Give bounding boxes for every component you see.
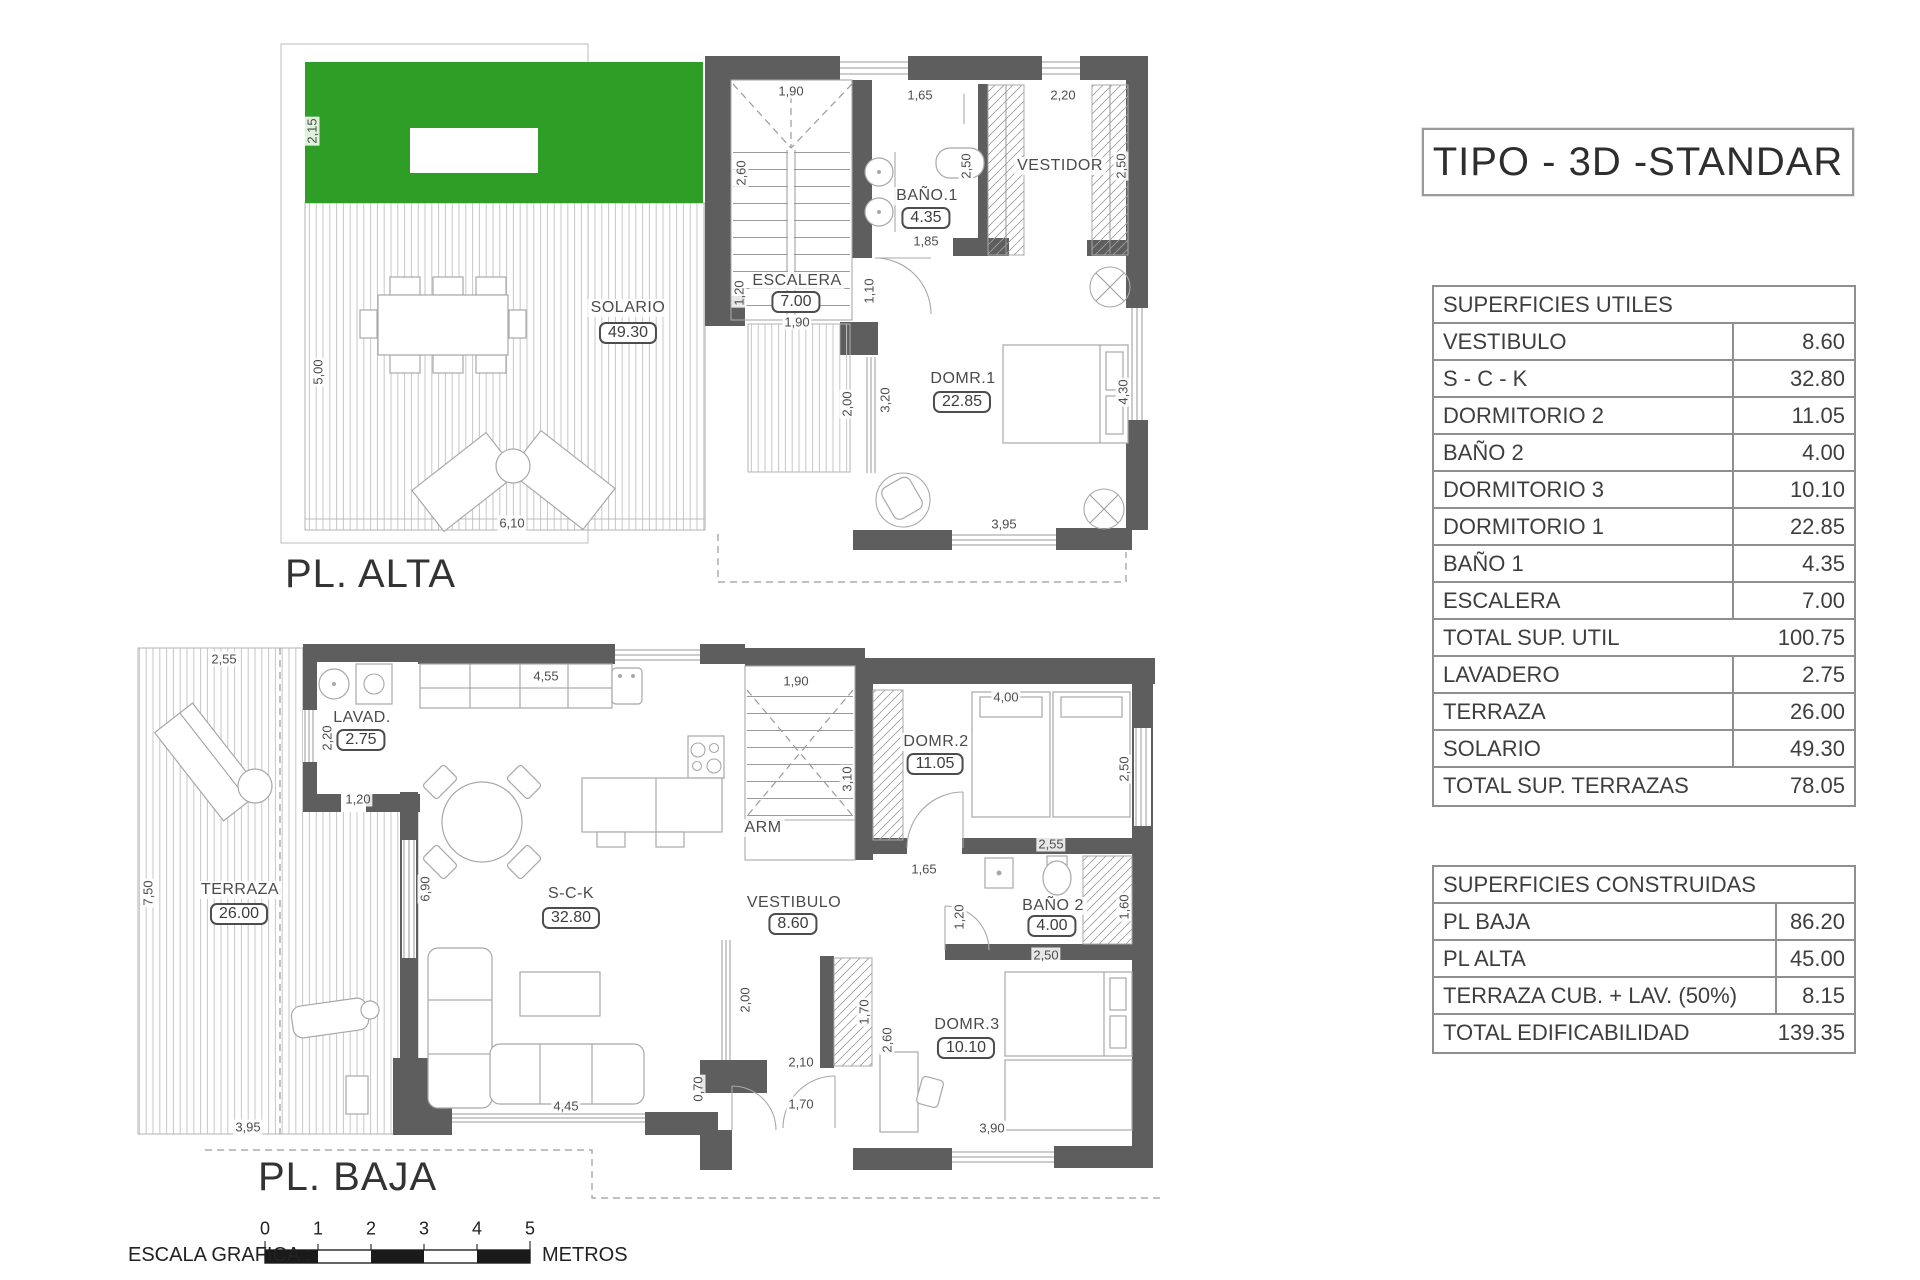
drawing-title: TIPO - 3D -STANDAR — [1433, 140, 1844, 185]
dimension-label: 2,50 — [1114, 151, 1129, 180]
dimension-label: 3,90 — [977, 1121, 1006, 1136]
dimension-label: 0,70 — [691, 1074, 706, 1103]
table-utiles-header: SUPERFICIES UTILES — [1434, 287, 1854, 324]
row-value: 11.05 — [1732, 398, 1854, 433]
row-value: 78.05 — [1732, 768, 1854, 805]
scale-tick: 2 — [366, 1219, 376, 1240]
dimension-label: 2,50 — [959, 151, 974, 180]
scale-units: METROS — [542, 1244, 628, 1267]
dimension-label: 2,60 — [734, 158, 749, 187]
row-value: 2.75 — [1732, 657, 1854, 692]
row-label: TERRAZA CUB. + LAV. (50%) — [1434, 978, 1775, 1013]
table-row: TERRAZA CUB. + LAV. (50%)8.15 — [1434, 978, 1854, 1015]
row-label: PL ALTA — [1434, 941, 1775, 976]
dimension-label: 4,55 — [531, 669, 560, 684]
room-label-alta: VESTIDOR — [1014, 157, 1106, 175]
table-construidas-header: SUPERFICIES CONSTRUIDAS — [1434, 867, 1854, 904]
dimension-label: 4,30 — [1116, 377, 1131, 406]
row-value: 8.60 — [1732, 324, 1854, 359]
table-row: SOLARIO49.30 — [1434, 731, 1854, 768]
dimension-label: 1,90 — [781, 674, 810, 689]
dimension-label: 1,65 — [905, 88, 934, 103]
room-label-baja: DOMR.2 — [900, 733, 971, 751]
floor-plan-sheet: SOLARIO49.30ESCALERA7.00BAÑO.14.35VESTID… — [0, 0, 1920, 1280]
dimension-label: 1,90 — [782, 315, 811, 330]
table-row: BAÑO 24.00 — [1434, 435, 1854, 472]
table-row: DORMITORIO 310.10 — [1434, 472, 1854, 509]
row-value: 10.10 — [1732, 472, 1854, 507]
scale-label: ESCALA GRAFICA : — [128, 1244, 310, 1267]
dimension-label: 2,50 — [1117, 754, 1132, 783]
room-label-baja: LAVAD. — [330, 709, 394, 727]
area-box-alta: 49.30 — [599, 322, 657, 344]
table-row: PL ALTA45.00 — [1434, 941, 1854, 978]
area-box-baja: 26.00 — [210, 903, 268, 925]
room-label-alta: SOLARIO — [588, 299, 669, 317]
table-row: DORMITORIO 211.05 — [1434, 398, 1854, 435]
row-value: 7.00 — [1732, 583, 1854, 618]
row-label: TOTAL SUP. TERRAZAS — [1434, 768, 1732, 805]
table-row: VESTIBULO8.60 — [1434, 324, 1854, 361]
row-value: 4.00 — [1732, 435, 1854, 470]
dimension-label: 1,60 — [1117, 892, 1132, 921]
dimension-label: 6,90 — [418, 874, 433, 903]
dimension-label: 1,90 — [776, 84, 805, 99]
table-row: PL BAJA86.20 — [1434, 904, 1854, 941]
dimension-label: 2,55 — [209, 652, 238, 667]
row-value: 26.00 — [1732, 694, 1854, 729]
table-row: BAÑO 14.35 — [1434, 546, 1854, 583]
room-label-baja: ARM — [741, 819, 784, 837]
roof-opening — [410, 128, 538, 173]
dimension-label: 2,50 — [1031, 948, 1060, 963]
row-label: TOTAL SUP. UTIL — [1434, 620, 1732, 655]
dimension-label: 1,70 — [786, 1097, 815, 1112]
row-value: 49.30 — [1732, 731, 1854, 766]
dimension-label: 2,20 — [320, 723, 335, 752]
dimension-label: 1,85 — [911, 234, 940, 249]
table-row: TOTAL SUP. UTIL100.75 — [1434, 620, 1854, 657]
row-label: DORMITORIO 2 — [1434, 398, 1732, 433]
table-row: DORMITORIO 122.85 — [1434, 509, 1854, 546]
row-label: TERRAZA — [1434, 694, 1732, 729]
dimension-label: 1,65 — [909, 862, 938, 877]
dimension-label: 4,45 — [551, 1099, 580, 1114]
area-box-baja: 32.80 — [542, 907, 600, 929]
dimension-label: 1,20 — [343, 792, 372, 807]
dimension-label: 2,15 — [305, 116, 320, 145]
room-label-baja: BAÑO 2 — [1019, 897, 1087, 915]
dimension-label: 1,20 — [732, 278, 747, 307]
row-label: ESCALERA — [1434, 583, 1732, 618]
scale-tick: 3 — [419, 1219, 429, 1240]
row-label: PL BAJA — [1434, 904, 1775, 939]
room-label-baja: VESTIBULO — [744, 894, 844, 912]
row-label: DORMITORIO 3 — [1434, 472, 1732, 507]
row-value: 22.85 — [1732, 509, 1854, 544]
laundry-fixtures — [319, 664, 392, 704]
area-box-baja: 2.75 — [336, 729, 385, 751]
drawing-title-box: TIPO - 3D -STANDAR — [1422, 128, 1854, 196]
bedroom1-furniture — [876, 267, 1130, 529]
area-box-alta: 7.00 — [771, 291, 820, 313]
row-value: 139.35 — [1775, 1015, 1854, 1052]
plan-alta-title: PL. ALTA — [285, 552, 456, 597]
dimension-label: 4,00 — [991, 690, 1020, 705]
area-box-alta: 22.85 — [933, 391, 991, 413]
table-row: TOTAL EDIFICABILIDAD139.35 — [1434, 1015, 1854, 1052]
room-label-baja: DOMR.3 — [931, 1016, 1002, 1034]
row-value: 100.75 — [1732, 620, 1854, 655]
balcony-deck — [748, 324, 850, 472]
row-value: 86.20 — [1775, 904, 1854, 939]
area-box-baja: 8.60 — [768, 913, 817, 935]
table-superficies-utiles: SUPERFICIES UTILES VESTIBULO8.60S - C - … — [1432, 285, 1856, 807]
row-label: BAÑO 2 — [1434, 435, 1732, 470]
table-row: TOTAL SUP. TERRAZAS78.05 — [1434, 768, 1854, 805]
room-label-alta: ESCALERA — [749, 272, 844, 290]
dimension-label: 2,60 — [880, 1025, 895, 1054]
dimension-label: 6,10 — [497, 516, 526, 531]
plan-alta-drawing — [281, 44, 1148, 582]
row-label: VESTIBULO — [1434, 324, 1732, 359]
room-label-baja: S-C-K — [545, 885, 597, 903]
dimension-label: 2,00 — [738, 985, 753, 1014]
scale-tick: 0 — [260, 1219, 270, 1240]
table-row: ESCALERA7.00 — [1434, 583, 1854, 620]
plan-baja-drawing — [138, 644, 1160, 1198]
dimension-label: 2,55 — [1036, 837, 1065, 852]
dimension-label: 1,70 — [857, 997, 872, 1026]
dimension-label: 3,95 — [233, 1120, 262, 1135]
row-value: 32.80 — [1732, 361, 1854, 396]
row-label: SOLARIO — [1434, 731, 1732, 766]
row-label: TOTAL EDIFICABILIDAD — [1434, 1015, 1775, 1052]
table-row: TERRAZA26.00 — [1434, 694, 1854, 731]
row-value: 45.00 — [1775, 941, 1854, 976]
table-row: LAVADERO2.75 — [1434, 657, 1854, 694]
row-label: DORMITORIO 1 — [1434, 509, 1732, 544]
dimension-label: 3,10 — [840, 764, 855, 793]
area-box-baja: 4.00 — [1027, 915, 1076, 937]
area-box-alta: 4.35 — [901, 207, 950, 229]
dimension-label: 1,20 — [952, 902, 967, 931]
dimension-label: 2,00 — [840, 389, 855, 418]
door-alta — [875, 258, 931, 314]
area-box-baja: 10.10 — [937, 1037, 995, 1059]
scale-tick: 4 — [472, 1219, 482, 1240]
dimension-label: 3,95 — [989, 517, 1018, 532]
dimension-label: 5,00 — [311, 357, 326, 386]
dimension-label: 7,50 — [141, 878, 156, 907]
dimension-label: 3,20 — [878, 385, 893, 414]
room-label-alta: DOMR.1 — [927, 370, 998, 388]
plan-baja-title: PL. BAJA — [258, 1155, 437, 1200]
room-label-baja: TERRAZA — [198, 881, 282, 899]
scale-tick: 1 — [313, 1219, 323, 1240]
table-row: S - C - K32.80 — [1434, 361, 1854, 398]
row-value: 4.35 — [1732, 546, 1854, 581]
row-label: BAÑO 1 — [1434, 546, 1732, 581]
dimension-label: 2,20 — [1048, 88, 1077, 103]
dimension-label: 2,10 — [786, 1055, 815, 1070]
area-box-baja: 11.05 — [907, 753, 964, 775]
row-value: 8.15 — [1775, 978, 1854, 1013]
dimension-label: 1,10 — [862, 276, 877, 305]
room-label-alta: BAÑO.1 — [893, 187, 961, 205]
scale-tick: 5 — [525, 1219, 535, 1240]
row-label: LAVADERO — [1434, 657, 1732, 692]
table-superficies-construidas: SUPERFICIES CONSTRUIDAS PL BAJA86.20PL A… — [1432, 865, 1856, 1054]
row-label: S - C - K — [1434, 361, 1732, 396]
